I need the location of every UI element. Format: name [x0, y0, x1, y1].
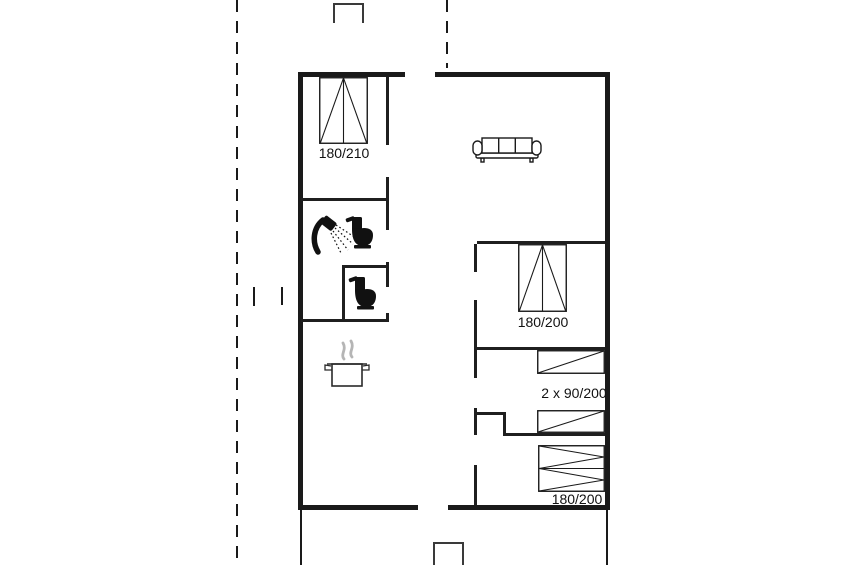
bed-size-label: 180/200 — [545, 491, 609, 507]
exterior-wall-top-right-segment — [435, 72, 610, 77]
wall-segment — [477, 412, 504, 415]
wall-segment — [506, 433, 605, 436]
double-bed-icon — [518, 244, 567, 312]
exterior-wall-left — [298, 72, 303, 510]
entrance-marker-top — [333, 3, 364, 23]
boundary-dashed-line-left — [236, 0, 238, 565]
wall-segment — [342, 265, 389, 268]
floor-plan: 180/210 — [0, 0, 848, 565]
double-bed-icon — [538, 445, 605, 492]
bunk-bed-size-label: 2 x 90/200 — [534, 385, 614, 401]
double-bed-icon — [319, 77, 368, 144]
entrance-marker-bottom — [433, 542, 464, 565]
exterior-wall-bottom-left-segment — [298, 505, 418, 510]
wall-segment — [474, 465, 477, 505]
wall-segment — [386, 77, 389, 145]
cooking-pot-icon — [322, 335, 372, 391]
wall-segment — [474, 244, 477, 272]
toilet-icon — [348, 276, 378, 312]
wall-segment — [386, 177, 389, 230]
boundary-dashed-line-top — [446, 0, 448, 68]
single-bed-icon — [537, 350, 605, 374]
wall-segment — [474, 300, 477, 378]
wall-segment — [301, 319, 389, 322]
bed-size-label: 180/210 — [314, 145, 374, 161]
boundary-tick-left-2 — [281, 287, 283, 305]
terrace-edge-right — [606, 510, 608, 565]
boundary-tick-left-1 — [253, 287, 255, 306]
wall-segment — [342, 265, 345, 322]
wall-segment — [301, 198, 389, 201]
sofa-icon — [471, 135, 543, 165]
single-bed-icon — [537, 410, 605, 433]
terrace-edge-left — [300, 510, 302, 565]
bed-size-label: 180/200 — [513, 314, 573, 330]
toilet-icon — [345, 216, 375, 251]
exterior-wall-right — [605, 72, 610, 510]
